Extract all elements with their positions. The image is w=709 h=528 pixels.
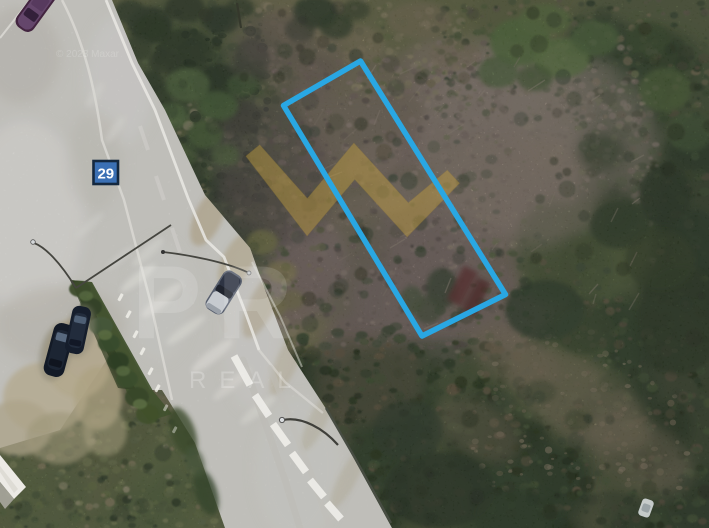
svg-text:29: 29 xyxy=(97,166,114,183)
svg-text:© 2023 Maxar: © 2023 Maxar xyxy=(56,49,120,60)
svg-text:REAL: REAL xyxy=(189,367,304,394)
svg-text:PR: PR xyxy=(132,245,308,361)
